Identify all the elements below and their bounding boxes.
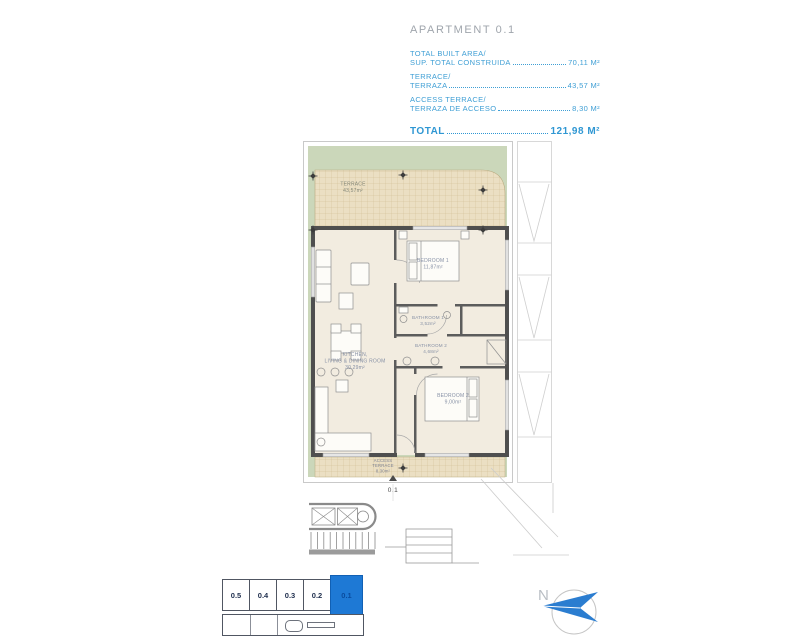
area-row-total-built: TOTAL BUILT AREA/ SUP. TOTAL CONSTRUIDA …: [410, 49, 600, 67]
unit-label: 0.2: [312, 591, 322, 600]
unit-label: 0.5: [231, 591, 241, 600]
area-row-terrace: TERRACE/ TERRAZA 43,57 M²: [410, 72, 600, 90]
bedroom1-area: 11,87m²: [423, 265, 443, 271]
bathroom2-label: BATHROOM 2: [415, 343, 447, 348]
area-label-en: TERRACE/: [410, 72, 600, 81]
stairs-walkway: [309, 504, 376, 555]
keyplan-unit-02: 0.2: [303, 579, 331, 611]
brochure-page: APARTMENT 0.1 TOTAL BUILT AREA/ SUP. TOT…: [0, 0, 800, 640]
keyplan-base: [222, 614, 364, 636]
area-value: 8,30 M²: [572, 104, 600, 113]
bathroom1-label: BATHROOM 1: [412, 315, 444, 320]
bedroom1-label: BEDROOM 1: [417, 258, 449, 264]
living-label-2: LIVING & DINING ROOM: [325, 359, 386, 365]
keyplan-unit-05: 0.5: [222, 579, 250, 611]
keyplan-entry-shape: [285, 620, 303, 632]
north-label: N: [538, 587, 549, 604]
key-plan: 0.5 0.4 0.3 0.2 0.1: [220, 574, 366, 636]
bedroom2-label: BEDROOM 2: [437, 393, 469, 399]
adjacent-building: [518, 142, 552, 483]
floor-plan: TERRACE 43,57m² BEDROOM 1 11,87m² BATHRO…: [295, 135, 575, 585]
dotted-leader: [449, 87, 565, 88]
keyplan-unit-04: 0.4: [249, 579, 277, 611]
bathroom1-area: 3,52m²: [420, 321, 436, 326]
dotted-leader: [498, 110, 570, 111]
keyplan-unit-03: 0.3: [276, 579, 304, 611]
access-terrace-label-2: TERRACE: [372, 463, 393, 468]
living-label-1: KITCHEN,: [343, 352, 368, 358]
terrace-label: TERRACE: [340, 182, 366, 188]
area-label-en: ACCESS TERRACE/: [410, 95, 600, 104]
unit-label: 0.1: [341, 591, 351, 600]
area-value: 70,11 M²: [568, 58, 600, 67]
area-label-es: SUP. TOTAL CONSTRUIDA: [410, 58, 511, 67]
terrace-floor: [315, 170, 505, 230]
area-label-es: TERRAZA DE ACCESO: [410, 104, 496, 113]
unit-label: 0.4: [258, 591, 268, 600]
page-title: APARTMENT 0.1: [410, 24, 600, 36]
area-row-access-terrace: ACCESS TERRACE/ TERRAZA DE ACCESO 8,30 M…: [410, 95, 600, 113]
divider: [250, 615, 251, 635]
stairs-secondary: [385, 529, 479, 563]
area-label-en: TOTAL BUILT AREA/: [410, 49, 600, 58]
access-terrace-floor: [315, 457, 505, 477]
keyplan-bar-shape: [307, 622, 335, 628]
north-arrow: N: [528, 582, 614, 640]
apartment-summary: APARTMENT 0.1 TOTAL BUILT AREA/ SUP. TOT…: [410, 24, 600, 137]
bathroom2-area: 4,68m²: [423, 349, 439, 354]
area-value: 43,57 M²: [568, 81, 600, 90]
access-terrace-area: 8,30m²: [376, 469, 391, 474]
keyplan-unit-01-selected: 0.1: [330, 575, 363, 616]
unit-label: 0.3: [285, 591, 295, 600]
terrace-area: 43,57m²: [343, 188, 363, 194]
living-area: 30,29m²: [345, 365, 365, 371]
divider: [277, 615, 278, 635]
north-arrow-glyph: [542, 592, 598, 622]
dotted-leader: [447, 133, 549, 134]
bedroom2-area: 9,00m²: [445, 400, 462, 406]
dotted-leader: [513, 64, 566, 65]
area-label-es: TERRAZA: [410, 81, 447, 90]
